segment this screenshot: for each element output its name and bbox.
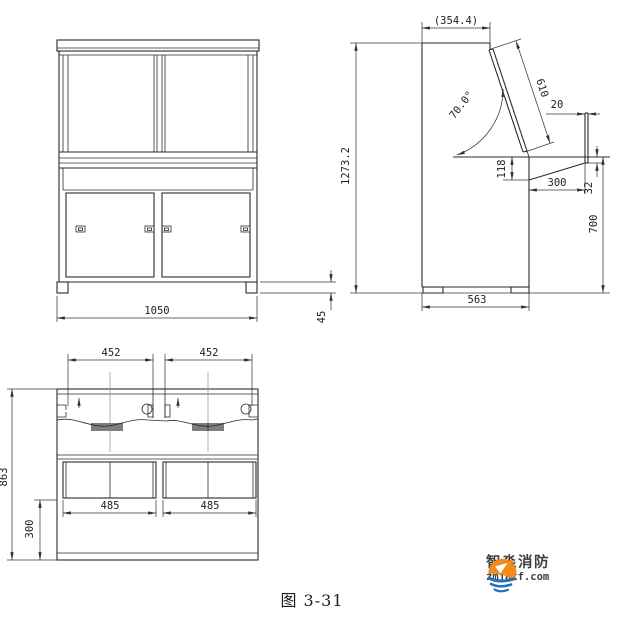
dim-side-panel-thickness: 20 xyxy=(546,99,600,114)
dim-side-panel-length: 610 xyxy=(491,39,554,152)
side-foot-left xyxy=(423,287,443,293)
dim-plan-opening-right: 485 xyxy=(163,500,256,517)
dim-side-base-depth: 563 xyxy=(422,293,529,311)
side-view: (354.4) 1273.2 610 70.0° 20 xyxy=(340,15,610,311)
svg-text:32: 32 xyxy=(583,182,595,195)
svg-text:45: 45 xyxy=(316,311,328,324)
plan-round-pull-left xyxy=(142,404,152,414)
side-foot-right xyxy=(511,287,529,293)
watermark-logo: 智淼消防 zmjaxf.com xyxy=(486,556,550,583)
side-slant-panel xyxy=(489,49,529,157)
svg-text:300: 300 xyxy=(24,520,36,539)
dim-side-back-thickness: 118 xyxy=(496,157,529,180)
svg-text:863: 863 xyxy=(0,468,10,487)
front-lower-doors xyxy=(66,193,250,277)
dim-side-front-edge: 32 xyxy=(583,146,603,194)
plan-opening-left xyxy=(63,462,156,498)
front-foot-right xyxy=(246,282,257,293)
svg-text:610: 610 xyxy=(533,77,550,99)
plan-view: 452 452 485 485 863 xyxy=(0,347,258,560)
dim-plan-panel-left: 452 xyxy=(68,347,153,406)
plan-hinge-brackets xyxy=(57,405,258,417)
dim-side-top-depth: (354.4) xyxy=(422,15,490,43)
dim-side-desk-depth: 300 xyxy=(529,163,585,194)
front-drawer-band xyxy=(63,168,253,190)
svg-text:563: 563 xyxy=(468,294,487,306)
svg-text:300: 300 xyxy=(548,177,567,189)
dim-plan-panel-right: 452 xyxy=(165,347,252,406)
svg-text:(354.4): (354.4) xyxy=(434,15,478,27)
plan-opening-right xyxy=(163,462,256,498)
front-view: 1050 45 xyxy=(57,40,336,323)
dim-front-width: 1050 xyxy=(57,296,257,322)
svg-text:452: 452 xyxy=(200,347,219,359)
figure-caption: 图 3-31 xyxy=(252,587,372,611)
dim-plan-front-depth: 300 xyxy=(24,500,57,560)
logo-icon xyxy=(486,556,519,596)
cad-drawing: 1050 45 xyxy=(0,0,620,617)
door-handle-icon xyxy=(76,226,250,232)
svg-text:20: 20 xyxy=(551,99,564,111)
front-foot-left xyxy=(57,282,68,293)
plan-break-line xyxy=(57,419,258,426)
svg-text:1273.2: 1273.2 xyxy=(340,147,352,185)
front-glass-doors xyxy=(59,55,257,168)
drawing-sheet: 1050 45 xyxy=(0,0,620,617)
plan-vent-hatch-left xyxy=(92,423,122,431)
svg-text:118: 118 xyxy=(496,160,508,179)
plan-round-pull-right xyxy=(241,404,251,414)
dim-front-foot-height: 45 xyxy=(260,270,336,323)
svg-text:70.0°: 70.0° xyxy=(447,89,476,121)
dim-side-desk-height: 700 xyxy=(588,157,603,293)
svg-text:452: 452 xyxy=(102,347,121,359)
svg-text:1050: 1050 xyxy=(144,305,169,317)
dim-side-panel-angle: 70.0° xyxy=(447,89,503,155)
dim-side-total-height: 1273.2 xyxy=(340,43,422,293)
svg-text:700: 700 xyxy=(588,215,600,234)
svg-text:485: 485 xyxy=(201,500,220,512)
plan-up-arrow-icon xyxy=(79,398,178,408)
side-desk xyxy=(453,113,610,180)
svg-text:485: 485 xyxy=(101,500,120,512)
front-top-cap xyxy=(57,40,259,51)
dim-plan-opening-left: 485 xyxy=(63,500,156,517)
